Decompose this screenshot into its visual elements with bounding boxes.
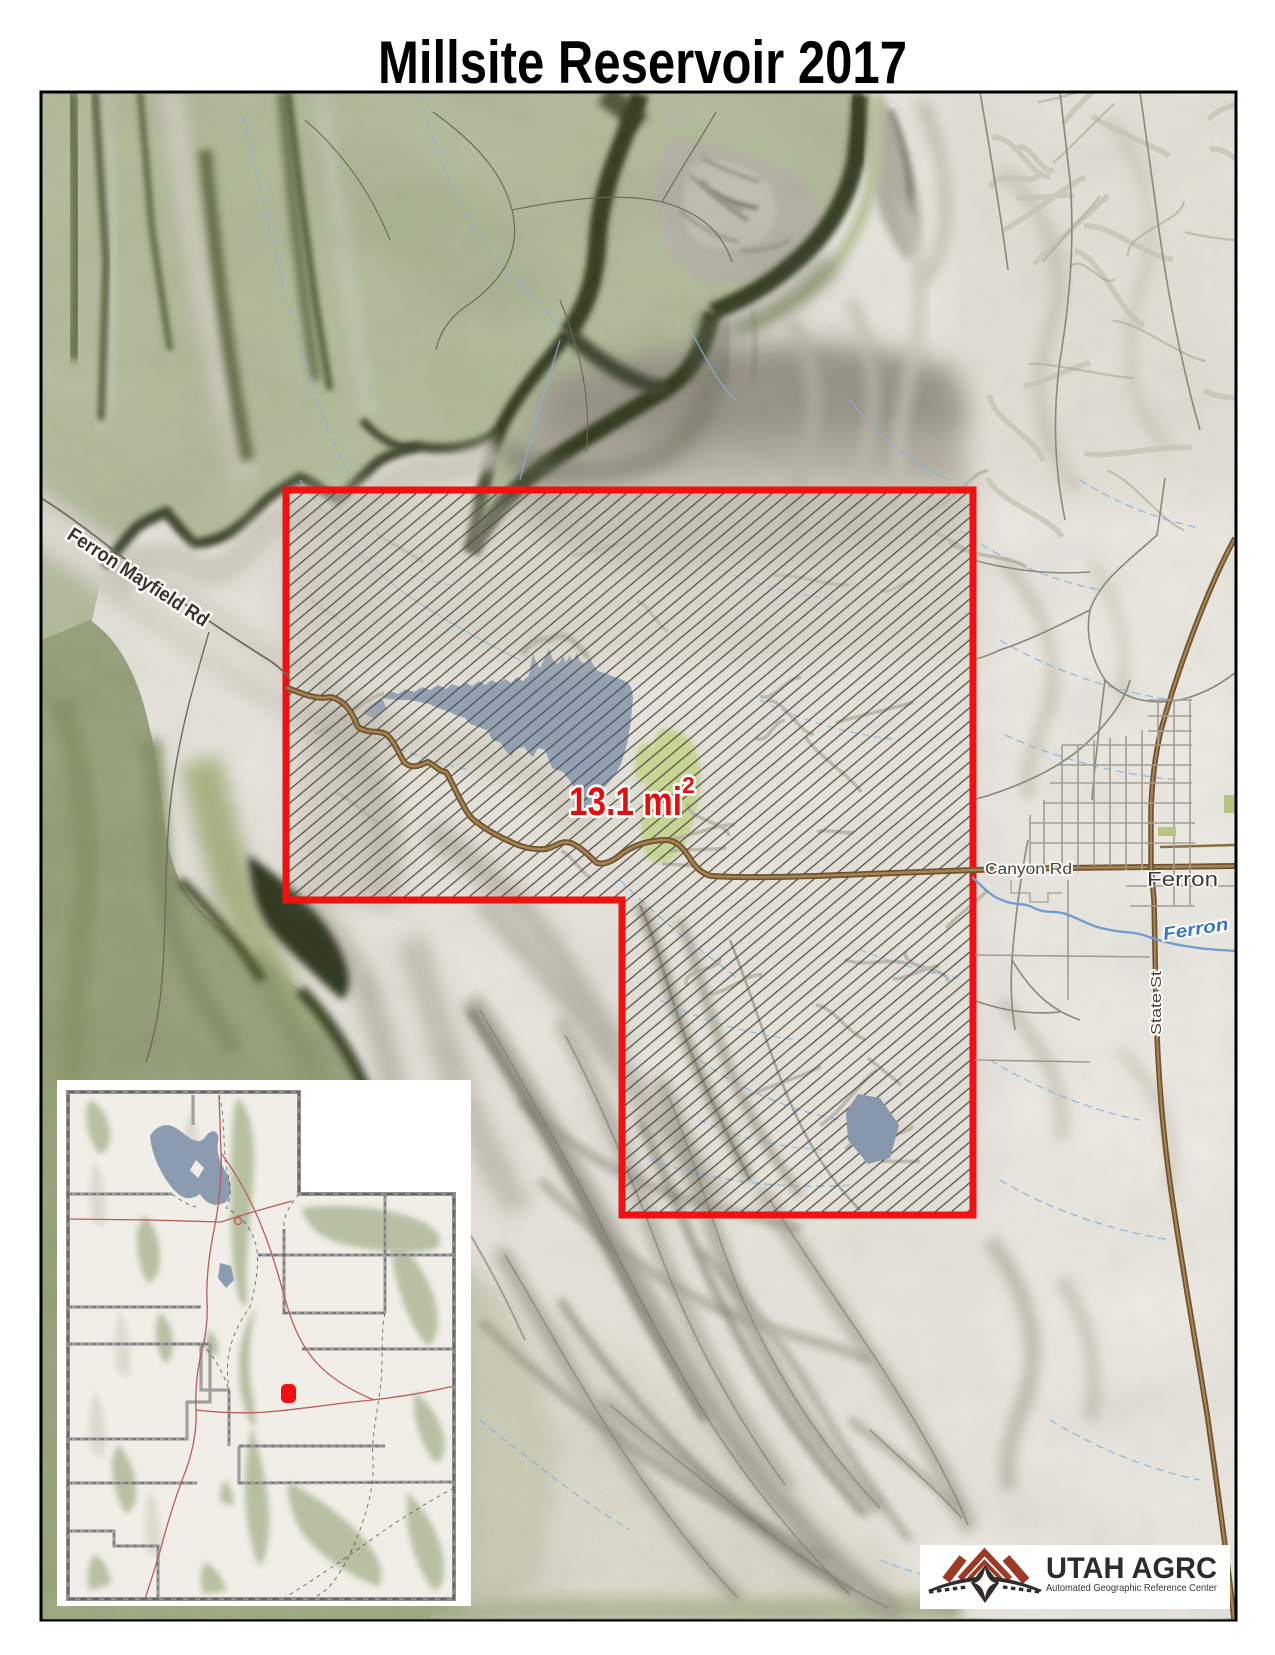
- svg-text:Millsite Reservoir 2017: Millsite Reservoir 2017: [378, 29, 907, 96]
- svg-text:Ferron: Ferron: [1147, 868, 1218, 891]
- svg-text:2: 2: [682, 772, 695, 798]
- svg-text:UTAH AGRC: UTAH AGRC: [1046, 1552, 1217, 1585]
- svg-text:13.1 mi: 13.1 mi: [569, 780, 682, 824]
- svg-text:State St: State St: [1149, 971, 1165, 1035]
- svg-text:Automated Geographic Reference: Automated Geographic Reference Center: [1046, 1583, 1218, 1594]
- svg-text:Canyon Rd: Canyon Rd: [985, 861, 1072, 878]
